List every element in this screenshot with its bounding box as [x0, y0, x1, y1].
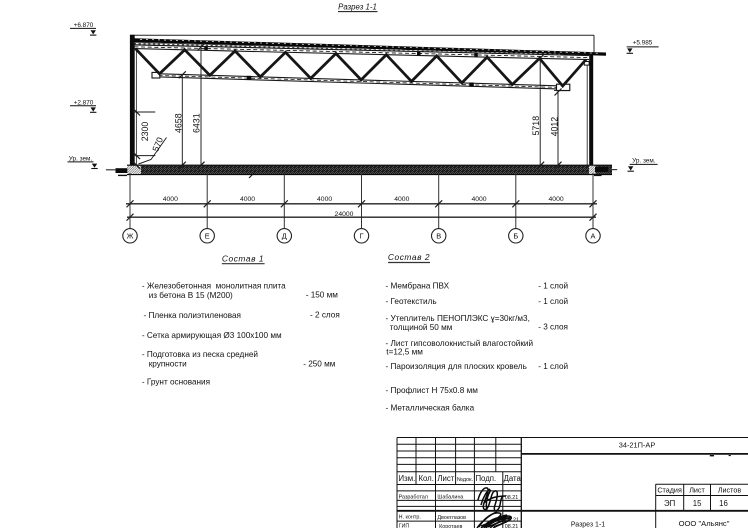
svg-text:4000: 4000 [471, 196, 486, 203]
svg-text:Лист: Лист [437, 474, 454, 483]
svg-text:Изм.: Изм. [399, 474, 416, 483]
svg-text:- 1 слой: - 1 слой [538, 282, 568, 291]
svg-text:- Пленка полиэтиленовая: - Пленка полиэтиленовая [144, 311, 241, 320]
svg-text:4000: 4000 [394, 196, 409, 203]
svg-text:4012: 4012 [550, 117, 560, 137]
svg-text:16: 16 [719, 499, 728, 508]
svg-text:Д: Д [282, 232, 287, 241]
svg-text:Ж: Ж [127, 232, 134, 241]
svg-text:- 1 слой: - 1 слой [538, 362, 568, 371]
svg-text:Разрез 1-1: Разрез 1-1 [338, 3, 377, 12]
svg-text:Г: Г [359, 232, 363, 241]
svg-text:Листов: Листов [718, 486, 742, 495]
svg-text:Состав 2: Состав 2 [388, 252, 430, 262]
svg-text:2300: 2300 [140, 122, 150, 142]
svg-text:4000: 4000 [549, 196, 564, 203]
svg-text:№док.: №док. [457, 477, 474, 483]
svg-text:Двоеглазов: Двоеглазов [437, 515, 466, 521]
svg-text:- 1 слой: - 1 слой [538, 297, 568, 306]
svg-text:крупности: крупности [149, 360, 187, 369]
svg-text:24000: 24000 [335, 211, 354, 218]
svg-text:Е: Е [205, 232, 210, 241]
svg-text:34-21П-АР: 34-21П-АР [619, 441, 656, 450]
svg-text:+6.870: +6.870 [74, 22, 94, 29]
svg-text:4000: 4000 [317, 196, 332, 203]
svg-text:- Железобетонная монолитная п: - Железобетонная монолитная плита [142, 281, 286, 290]
svg-text:Шабалина: Шабалина [437, 495, 463, 501]
svg-text:Дата: Дата [504, 474, 522, 483]
svg-text:4658: 4658 [174, 113, 184, 133]
svg-text:толщиной 50 мм: толщиной 50 мм [390, 323, 453, 332]
svg-text:Разработал: Разработал [399, 495, 428, 501]
svg-text:Б: Б [513, 232, 518, 241]
svg-text:А: А [591, 232, 596, 241]
svg-text:15: 15 [693, 499, 702, 508]
svg-text:Лист: Лист [689, 486, 705, 495]
svg-text:- 150 мм: - 150 мм [306, 291, 339, 300]
svg-text:08.21: 08.21 [505, 524, 519, 528]
svg-text:Состав 1: Состав 1 [222, 253, 264, 263]
svg-text:4000: 4000 [163, 196, 178, 203]
svg-text:ГИП: ГИП [399, 524, 410, 528]
svg-text:08.21: 08.21 [505, 495, 519, 501]
svg-text:Ур. зем.: Ур. зем. [69, 155, 93, 162]
svg-text:Подп.: Подп. [475, 474, 496, 483]
svg-text:- Геотекстиль: - Геотекстиль [386, 297, 437, 306]
svg-text:- 3 слоя: - 3 слоя [538, 323, 568, 332]
svg-text:- Грунт основания: - Грунт основания [142, 378, 210, 387]
svg-text:Ур. зем.: Ур. зем. [632, 158, 656, 165]
svg-text:Стадия: Стадия [657, 486, 682, 495]
svg-text:4000: 4000 [240, 196, 255, 203]
svg-text:5718: 5718 [531, 116, 541, 136]
svg-text:- Профлист Н 75х0.8 мм: - Профлист Н 75х0.8 мм [386, 386, 479, 395]
svg-text:В: В [436, 232, 441, 241]
svg-text:- Сетка армирующая Ø3 100х100: - Сетка армирующая Ø3 100х100 мм [142, 331, 282, 340]
svg-text:- 250 мм: - 250 мм [303, 360, 336, 369]
svg-text:Разрез 1-1: Разрез 1-1 [571, 521, 605, 528]
svg-text:- Металлическая балка: - Металлическая балка [386, 403, 475, 412]
svg-text:- Пароизоляция для плоских кро: - Пароизоляция для плоских кровель [386, 362, 527, 371]
svg-text:- Подготовка из песка средней: - Подготовка из песка средней [142, 350, 258, 359]
svg-text:из бетона В 15 (М200): из бетона В 15 (М200) [149, 291, 233, 300]
svg-text:- Мембрана ПВХ: - Мембрана ПВХ [386, 282, 450, 291]
svg-text:ЭП: ЭП [664, 499, 675, 508]
svg-text:- 2 слоя: - 2 слоя [310, 311, 340, 320]
svg-text:t=12,5 мм: t=12,5 мм [386, 348, 423, 357]
svg-text:ООО "Альянс": ООО "Альянс" [679, 519, 730, 528]
svg-text:6431: 6431 [192, 113, 202, 133]
svg-text:Н. контр.: Н. контр. [399, 514, 421, 520]
svg-text:- Утеплитель ПЕНОПЛЭКС ɣ=30кг/: - Утеплитель ПЕНОПЛЭКС ɣ=30кг/м3, [386, 314, 530, 323]
svg-text:Коротаев: Коротаев [439, 524, 462, 528]
svg-text:Кол.: Кол. [418, 474, 433, 483]
svg-text:+5.985: +5.985 [633, 39, 653, 46]
